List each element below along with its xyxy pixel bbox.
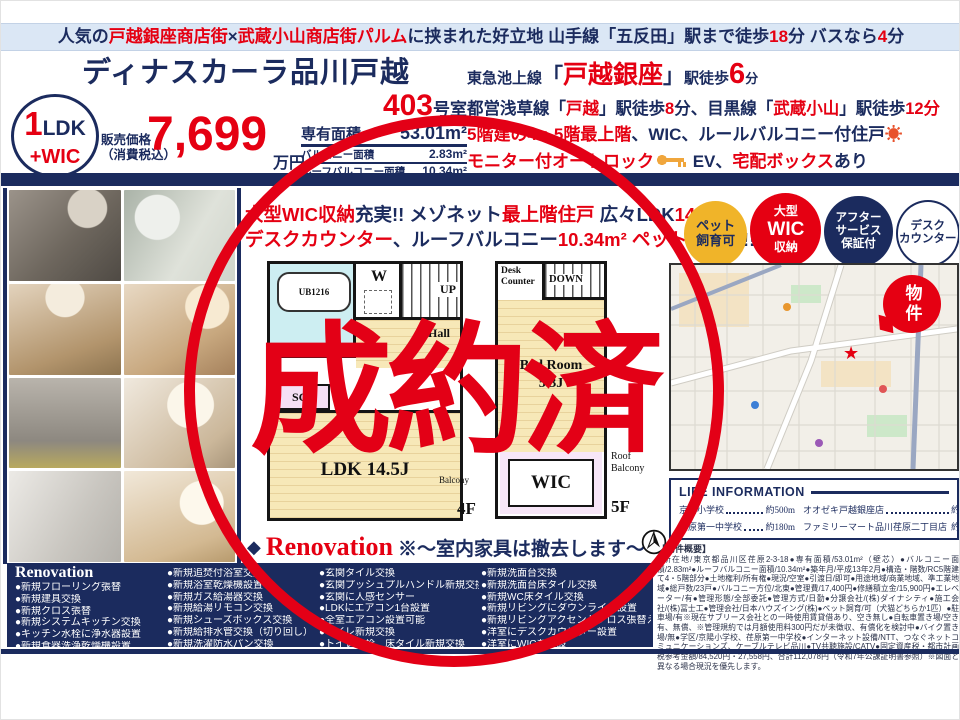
poi-name: 荏原第一中学校 [679, 520, 742, 533]
price-value: 7,699 [147, 107, 267, 162]
text-segment: デスクカウンター [245, 229, 393, 250]
badge-line: 収納 [750, 241, 821, 255]
stairs-down: DOWN [542, 264, 604, 300]
text-segment: 12分 [905, 100, 940, 118]
desk-counter-label-1: Desk [501, 266, 521, 276]
text-segment: 6 [729, 58, 745, 90]
floorplan-4f: UB1216 W UP Hall SC LDK 14.5J [267, 261, 463, 521]
text-segment: 宅配ボックス [732, 152, 834, 171]
property-star-marker: ★ [843, 343, 859, 364]
bathroom-area: UB1216 [270, 264, 356, 358]
ldk-room: LDK 14.5J [270, 410, 460, 518]
property-badge-label: 物件 [900, 284, 925, 324]
dotted-leader [726, 512, 763, 514]
building-title: ディナスカーラ品川戸越 [56, 49, 436, 91]
roof-balcony-label-1: Roof [611, 451, 631, 462]
badge-line: カウンター [898, 233, 958, 246]
access-line-4: モニター付オートロック EV、宅配ボックスあり [467, 148, 960, 175]
location-map: 物件 ★ [669, 263, 959, 471]
renovation-item: ●新規洗面台床タイル交換 [481, 580, 651, 592]
text-segment: 分 [745, 71, 758, 86]
text-segment: に挟まれた好立地 山手線「五反田」駅まで徒歩 [407, 27, 769, 46]
photo-living [124, 284, 236, 375]
room-number: 403号室 [301, 89, 467, 123]
renovation-item: ●新規建具交換 [15, 594, 165, 606]
room-number-suffix: 号室 [433, 100, 467, 119]
catch-line-2: デスクカウンター、ルーフバルコニー10.34m² ペット飼育可!! [245, 227, 681, 252]
poi-name: ファミリーマート品川荏原二丁目店 [803, 520, 947, 533]
layout-type-line1: 1LDK [14, 109, 96, 146]
area-label: バルコニー面積 [301, 147, 374, 162]
text-segment: 人気の [58, 27, 109, 46]
badge-line: デスク [898, 220, 958, 233]
text-segment: 戸越銀座 [563, 61, 663, 89]
text-segment: 最上階住戸 [502, 204, 595, 225]
area-value: 53.01m² [400, 123, 467, 144]
text-segment: モニター付オートロック [467, 152, 654, 171]
renovation-list-1: ●新規フローリング張替●新規建具交換●新規クロス張替●新規システムキッチン交換●… [15, 582, 165, 647]
renovation-item: ●新規給排水管交換（切り回し） [167, 627, 317, 639]
text-segment: あり [834, 152, 868, 171]
text-segment: 5階建の4・5階最上階 [467, 125, 631, 144]
renovation-item: ●新規クロス張替 [15, 606, 165, 618]
property-outline-header: 【物件概要】 [657, 542, 959, 555]
renovation-item: ●新規追焚付浴室交換 [167, 568, 317, 580]
text-segment: 」駅徒歩 [839, 100, 905, 118]
text-segment: 、WIC、ルールバルコニー付住戸 [631, 125, 885, 144]
top-banner: 人気の戸越銀座商店街×武蔵小山商店街パルムに挟まれた好立地 山手線「五反田」駅ま… [1, 23, 960, 51]
renovation-item: ●キッチン水栓に浄水器設置 [15, 629, 165, 641]
poi-distance: 約350m [951, 503, 960, 516]
renovation-item: ●洋室にWICを新設 [481, 639, 651, 647]
renovation-panel-title: Renovation [15, 564, 165, 582]
washer-label: W [371, 268, 387, 286]
renovation-list-4: ●新規洗面台交換●新規洗面台床タイル交換●新規WC床タイル交換●新規リビングにダ… [481, 568, 651, 647]
bottom-rule [1, 649, 960, 654]
text-segment [656, 154, 686, 167]
photo-bedroom [124, 471, 236, 562]
text-segment: 武蔵小山 [773, 100, 839, 118]
renovation-item: ●玄関プッシュプルハンドル新規交換 [319, 580, 479, 592]
badge-line: WIC [750, 219, 821, 241]
renovation-item: ●新規システムキッチン交換 [15, 617, 165, 629]
text-segment: 東急池上線 [467, 70, 542, 87]
text-segment: 、ルーフバルコニー [393, 229, 558, 250]
text-segment: 広々LDK [594, 204, 674, 225]
badge-line: ペット [684, 219, 747, 234]
text-segment: 「 [542, 65, 563, 88]
floorplan-5f: Desk Counter DOWN Bed Room 5.3J WIC [495, 261, 607, 519]
text-segment: 戸越銀座商店街 [109, 27, 228, 46]
badge-large-wic: 大型 WIC 収納 [750, 193, 821, 267]
text-segment: 都営浅草線「 [467, 100, 566, 118]
life-info-item: オオゼキ戸越銀座店約350m [803, 503, 960, 516]
property-map-badge: 物件 [883, 275, 941, 333]
badge-line: サービス [824, 225, 892, 238]
renovation-item: ●新規WC床タイル交換 [481, 592, 651, 604]
text-segment: 分、目黒線「 [674, 100, 773, 118]
renovation-item: ●LDKにエアコン1台設置 [319, 603, 479, 615]
renovation-item: ●新規リビングにダウンライト設置 [481, 603, 651, 615]
desk-counter-label-2: Counter [501, 277, 535, 287]
renovation-item: ●新規リビングアクセントクロス張替え [481, 615, 651, 627]
floorplan-panel: UB1216 W UP Hall SC LDK 14.5J Balcony 4F [243, 257, 667, 535]
catch-copy: 大型WIC収納充実!! メゾネット最上階住戸 広々LDK14.5J デスクカウン… [245, 202, 681, 252]
feature-badges: ペット 飼育可 大型 WIC 収納 アフター サービス 保証付 デスク カウンタ… [684, 193, 960, 267]
poi-distance: 約500m [765, 503, 795, 516]
balcony-label: Balcony [439, 475, 469, 485]
renovation-note: ◆ Renovation ※〜室内家具は撤去します〜 [247, 533, 645, 561]
area-label: 専有面積 [301, 123, 361, 144]
renovation-item: ●新規給湯リモコン交換 [167, 603, 317, 615]
catch-line-1: 大型WIC収納充実!! メゾネット最上階住戸 広々LDK14.5J [245, 202, 681, 227]
diamond-icon: ◆ [247, 537, 261, 558]
layout-ldk: LDK [43, 117, 86, 140]
text-segment: 戸越 [566, 100, 599, 118]
badge-after-service: アフター サービス 保証付 [824, 196, 892, 267]
renovation-item: ●新規浴室乾燥機設置 [167, 580, 317, 592]
text-segment: EV、 [688, 152, 732, 171]
renovation-item: ●全室エアコン設置可能 [319, 615, 479, 627]
access-info: 東急池上線「戸越銀座」駅徒歩6分 都営浅草線「戸越」駅徒歩8分、目黒線「武蔵小山… [467, 57, 960, 175]
area-value: 2.83m² [429, 147, 467, 161]
renovation-item: ●新規フローリング張替 [15, 582, 165, 594]
bedroom-size-label: 5.3J [539, 376, 564, 392]
renovation-item: ●新規洗濯防水パン交換 [167, 639, 317, 647]
dotted-leader [744, 529, 763, 531]
washer-pan [364, 290, 392, 314]
washer-area: W [356, 264, 402, 320]
photo-hallway [9, 378, 121, 469]
badge-line: 保証付 [824, 238, 892, 251]
life-information-header: LIFE INFORMATION [679, 485, 949, 499]
poi-distance: 約180m [951, 520, 960, 533]
sc-label: SC [292, 390, 307, 405]
renovation-item: ●玄関に人感センサー [319, 592, 479, 604]
bedroom: Bed Room 5.3J [498, 300, 604, 452]
renovation-column-4: ●新規洗面台交換●新規洗面台床タイル交換●新規WC床タイル交換●新規リビングにダ… [481, 568, 651, 647]
layout-type-badge: 1LDK +WIC [11, 94, 99, 178]
badge-pet-allowed: ペット 飼育可 [684, 201, 747, 267]
photo-dining [9, 284, 121, 375]
up-label: UP [438, 282, 458, 297]
text-segment: 」 [663, 65, 684, 88]
text-segment: 分 [887, 27, 904, 46]
layout-wic: +WIC [14, 146, 96, 168]
life-information-box: LIFE INFORMATION 京陽小学校約500m オオゼキ戸越銀座店約35… [669, 478, 959, 540]
life-info-item: 京陽小学校約500m [679, 503, 795, 516]
renovation-list-2: ●新規追焚付浴室交換●新規浴室乾燥機設置●新規ガス給湯器交換●新規給湯リモコン交… [167, 568, 317, 647]
furniture-removal-note: ※〜室内家具は撤去します〜 [398, 534, 645, 561]
flyer-page: 人気の戸越銀座商店街×武蔵小山商店街パルムに挟まれた好立地 山手線「五反田」駅ま… [0, 0, 960, 720]
floor-5f-label: 5F [611, 497, 630, 517]
room-number-value: 403 [383, 89, 433, 122]
photo-kitchen [9, 190, 121, 281]
wic-area: WIC [500, 452, 602, 514]
life-info-item: ファミリーマート品川荏原二丁目店約180m [803, 520, 960, 533]
divider-bar [1, 173, 960, 186]
dotted-leader [886, 512, 949, 514]
text-segment: 大型WIC収納 [245, 204, 355, 225]
access-line-2: 都営浅草線「戸越」駅徒歩8分、目黒線「武蔵小山」駅徒歩12分 [467, 96, 960, 122]
renovation-item: ●新規ガス給湯器交換 [167, 592, 317, 604]
text-segment: 4 [878, 27, 887, 46]
life-information-title: LIFE INFORMATION [679, 485, 805, 499]
renovation-item: ●トイレ水栓、床タイル新規交換 [319, 639, 479, 647]
renovation-column-3: ●玄関タイル交換●玄関プッシュプルハンドル新規交換●玄関に人感センサー●LDKに… [319, 568, 479, 647]
text-segment: × [228, 27, 238, 46]
badge-desk-counter: デスク カウンター [896, 200, 960, 267]
renovation-item: ●新規シューズボックス交換 [167, 615, 317, 627]
life-information-rule [811, 491, 949, 494]
renovation-panel: Renovation ●新規フローリング張替●新規建具交換●新規クロス張替●新規… [7, 563, 653, 647]
poi-name: 京陽小学校 [679, 503, 724, 516]
access-line-3: 5階建の4・5階最上階、WIC、ルールバルコニー付住戸☀ [467, 122, 960, 148]
renovation-item: ●トイレ新規交換 [319, 627, 479, 639]
badge-line: アフター [824, 212, 892, 225]
text-segment: 」駅徒歩 [599, 100, 665, 118]
photo-panel [3, 188, 241, 564]
photo-vanity [9, 471, 121, 562]
access-line-1: 東急池上線「戸越銀座」駅徒歩6分 [467, 57, 960, 96]
ldk-label: LDK 14.5J [321, 459, 410, 481]
wic-box: WIC [508, 459, 594, 507]
wic-label: WIC [531, 472, 571, 494]
text-segment: 武蔵小山商店街パルム [238, 27, 408, 46]
poi-distance: 約180m [765, 520, 795, 533]
badge-line: 大型 [750, 205, 821, 219]
stairs-up: UP [402, 264, 460, 320]
text-segment: 10.34m² [558, 229, 627, 250]
bedroom-label: Bed Room [520, 358, 583, 374]
photo-grid [9, 190, 235, 562]
renovation-item: ●新規食器洗浄乾燥機設置 [15, 641, 165, 647]
text-segment: ペット [627, 229, 688, 250]
poi-name: オオゼキ戸越銀座店 [803, 503, 884, 516]
text-segment: 18 [769, 27, 788, 46]
photo-desk-corner [124, 378, 236, 469]
area-row-exclusive: 専有面積 53.01m² [301, 123, 467, 147]
roof-balcony-label-2: Balcony [611, 463, 644, 474]
bathtub: UB1216 [277, 272, 351, 312]
text-segment: 駅徒歩 [684, 70, 729, 87]
text-segment: 充実!! メゾネット [355, 204, 502, 225]
bath-label: UB1216 [299, 287, 330, 297]
hall-label: Hall [428, 326, 450, 341]
text-segment: 8 [665, 100, 674, 118]
renovation-list-3: ●玄関タイル交換●玄関プッシュプルハンドル新規交換●玄関に人感センサー●LDKに… [319, 568, 479, 647]
renovation-column-1: Renovation ●新規フローリング張替●新規建具交換●新規クロス張替●新規… [15, 564, 165, 647]
layout-num: 1 [24, 105, 42, 142]
text-segment: 分 バスなら [788, 27, 878, 46]
hall-area: Hall [356, 320, 460, 368]
life-information-grid: 京陽小学校約500m オオゼキ戸越銀座店約350m 荏原第一中学校約180m フ… [679, 503, 949, 533]
renovation-item: ●洋室にデスクカウンター設置 [481, 627, 651, 639]
renovation-item: ●玄関タイル交換 [319, 568, 479, 580]
badge-line: 飼育可 [684, 234, 747, 249]
photo-bathroom [124, 190, 236, 281]
renovation-note-title: Renovation [266, 532, 393, 562]
life-info-item: 荏原第一中学校約180m [679, 520, 795, 533]
text-segment: ☀ [885, 125, 902, 144]
renovation-column-2: ●新規追焚付浴室交換●新規浴室乾燥機設置●新規ガス給湯器交換●新規給湯リモコン交… [167, 568, 317, 647]
floor-4f-label: 4F [457, 499, 476, 519]
shoe-closet: SC [274, 384, 330, 410]
down-label: DOWN [547, 274, 585, 285]
renovation-item: ●新規洗面台交換 [481, 568, 651, 580]
area-row-balcony: バルコニー面積 2.83m² [301, 147, 467, 164]
